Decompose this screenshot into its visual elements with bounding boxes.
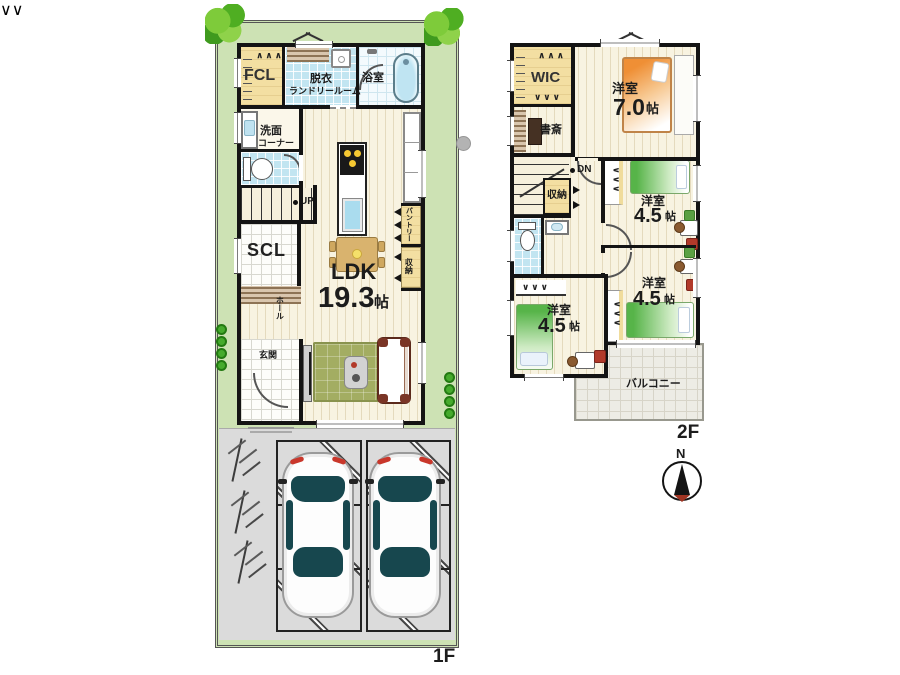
window [507, 60, 514, 92]
car-side-window [430, 500, 437, 550]
wall [299, 339, 303, 425]
room-label-hall: ホール [275, 296, 283, 320]
wall [601, 248, 605, 253]
toilet-bowl-icon [520, 230, 535, 251]
door-gap [299, 155, 303, 181]
window [234, 238, 241, 274]
room-label-bed45a-unit: 帖 [665, 212, 676, 224]
wall [237, 149, 303, 152]
car-mirror [365, 479, 374, 484]
room-label-bed45b-unit: 帖 [664, 295, 675, 307]
burner-icon [344, 150, 351, 157]
room-label-bed45c-unit: 帖 [569, 322, 580, 334]
burner-icon [354, 150, 361, 157]
tree-icon [424, 8, 466, 46]
room-label-bed45a-size: 4.5 [634, 206, 662, 227]
wall [401, 203, 425, 206]
washer-door-icon [338, 56, 345, 63]
faucet-icon [403, 59, 409, 65]
car-mirror [278, 479, 287, 484]
car-side-window [373, 500, 380, 550]
chair-icon [378, 241, 385, 252]
room-label-pantry: パントリー [405, 207, 412, 242]
room-label-storage-2f: 収納 [547, 191, 567, 202]
car-windshield [378, 476, 432, 502]
washbasin-sink-icon [244, 120, 255, 136]
hanger-icon [522, 284, 550, 293]
wall [297, 222, 301, 286]
car-mirror [436, 479, 445, 484]
hanger-icon [610, 167, 619, 195]
room-label-bed45c-size: 4.5 [538, 316, 566, 337]
window [693, 165, 701, 202]
hall-cabinet-icon [241, 286, 301, 304]
stairs-up-dot [293, 200, 298, 205]
wall [237, 220, 317, 224]
wall [237, 185, 303, 188]
shower-icon [367, 49, 377, 54]
window [507, 230, 514, 262]
hanger-icon [611, 301, 620, 329]
hanger-icon [534, 94, 562, 103]
wall [282, 43, 285, 105]
chair-icon [378, 257, 385, 268]
floorplan-canvas: UP [0, 0, 900, 675]
room-label-ldk-size: 19.3 [318, 283, 374, 313]
stairs-down-label: DN [577, 165, 591, 176]
car-icon [369, 452, 441, 618]
room-label-bed7-size: 7.0 [613, 95, 645, 119]
north-arrow-base [674, 495, 690, 502]
car-mirror [349, 479, 358, 484]
floor-label-1f: 1F [433, 647, 455, 667]
pillow-icon [678, 307, 690, 333]
car-rear-window [380, 547, 430, 577]
pillow-icon [676, 165, 687, 189]
window [418, 342, 426, 384]
compass-n-label: N [676, 447, 685, 461]
bed-headboard-icon [674, 55, 694, 135]
wall [541, 218, 544, 278]
wall [514, 104, 571, 107]
sofa-arm-icon [378, 394, 388, 403]
room-label-storage-1f: 収納 [404, 258, 412, 274]
wall [601, 161, 605, 223]
sofa-arm-icon [400, 338, 410, 347]
window [693, 258, 701, 298]
chair-icon [329, 241, 336, 252]
window [418, 150, 426, 198]
sofa-back-icon [404, 347, 408, 394]
coffee-table-icon [344, 356, 368, 389]
room-label-laundry2: ランドリールーム [289, 87, 361, 96]
hanger-icon [254, 50, 282, 59]
room-label-ldk: LDK [331, 260, 376, 283]
plant-icon [227, 490, 253, 536]
window [295, 41, 333, 48]
room-label-washroom2: コーナー [258, 139, 294, 148]
window [316, 420, 404, 428]
room-label-fcl: FCL [244, 68, 275, 85]
plate-icon [352, 249, 362, 259]
room-label-ldk-unit: 帖 [374, 295, 389, 311]
porch-step [248, 427, 294, 429]
cabinet-divider [404, 142, 420, 143]
window [693, 75, 701, 122]
desk-icon [567, 348, 603, 372]
room-label-entrance: 玄関 [259, 351, 277, 360]
car-icon [282, 452, 354, 618]
study-window-bench-icon [514, 110, 526, 152]
door-gap [578, 158, 598, 161]
plant-icon [224, 438, 250, 484]
toilet-tank-icon [518, 222, 536, 230]
stairs-down-dot [570, 168, 575, 173]
wall [571, 43, 575, 157]
room-label-bath: 浴室 [362, 73, 384, 85]
tv-icon [309, 352, 311, 395]
wall [514, 153, 571, 157]
laundry-counter-icon [287, 47, 329, 62]
washbasin-sink-icon [551, 223, 563, 231]
folding-door-icon [572, 182, 580, 212]
room-label-wic: WIC [531, 70, 560, 86]
burner-icon [349, 160, 356, 167]
north-arrow-needle [674, 464, 690, 495]
wall [313, 185, 317, 224]
car-side-window [343, 500, 350, 550]
floor-label-2f: 2F [677, 423, 699, 443]
window [600, 39, 660, 47]
car-side-window [286, 500, 293, 550]
cup-icon [351, 362, 357, 368]
balcony-window [616, 340, 696, 348]
window [507, 300, 514, 336]
window [234, 112, 241, 144]
room-label-washroom1: 洗面 [260, 126, 282, 138]
sofa-arm-icon [400, 394, 410, 403]
folding-door-icon [393, 247, 401, 288]
teapot-icon [352, 374, 360, 382]
car-rear-window [293, 547, 343, 577]
window [234, 58, 241, 88]
window [507, 116, 514, 146]
utility-pole-icon [456, 136, 471, 151]
room-label-bed45b-size: 4.5 [633, 289, 661, 310]
closet-shelf-icon [516, 54, 525, 98]
pillow-icon [650, 61, 669, 83]
pillow-icon [520, 352, 548, 366]
wall [601, 245, 696, 248]
room-label-study: 書斎 [540, 125, 562, 137]
room-label-balcony: バルコニー [626, 379, 681, 391]
car-windshield [291, 476, 345, 502]
sliding-door-icon [330, 105, 356, 109]
bush-icon [444, 372, 455, 419]
window [524, 374, 564, 381]
folding-door-icon [393, 205, 401, 245]
room-label-scl: SCL [247, 241, 286, 260]
sofa-arm-icon [378, 338, 388, 347]
plant-icon [230, 540, 256, 586]
room-label-bed7-unit: 帖 [646, 102, 659, 116]
toilet-tank-icon [243, 157, 251, 181]
wall [401, 288, 425, 291]
bush-icon [216, 324, 227, 371]
kitchen-sink-icon [343, 199, 362, 231]
hanger-icon [536, 50, 564, 59]
toilet-bowl-icon [251, 158, 273, 180]
wall [401, 244, 425, 247]
room-label-laundry1: 脱衣 [310, 74, 332, 86]
porch-step [250, 431, 292, 433]
tree-icon [205, 4, 247, 44]
